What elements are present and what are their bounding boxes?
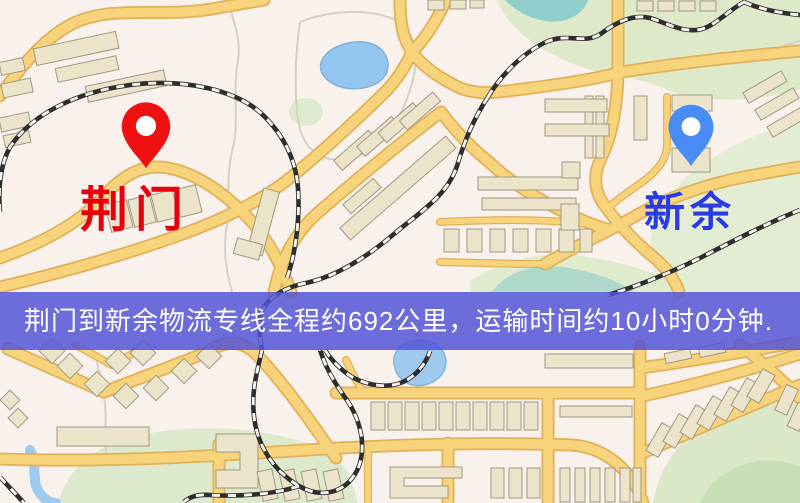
origin-pin-icon <box>119 101 173 171</box>
origin-city-label: 荆门 <box>80 170 190 240</box>
destination-city-label: 新余 <box>644 178 736 238</box>
map-image <box>0 0 800 503</box>
destination-pin-icon <box>666 103 716 169</box>
route-info-text: 荆门到新余物流专线全程约692公里，运输时间约10小时0分钟. <box>0 292 800 350</box>
route-info-banner: 荆门到新余物流专线全程约692公里，运输时间约10小时0分钟. <box>0 292 800 350</box>
route-map: 荆门 新余 荆门到新余物流专线全程约692公里，运输时间约10小时0分钟. <box>0 0 800 503</box>
